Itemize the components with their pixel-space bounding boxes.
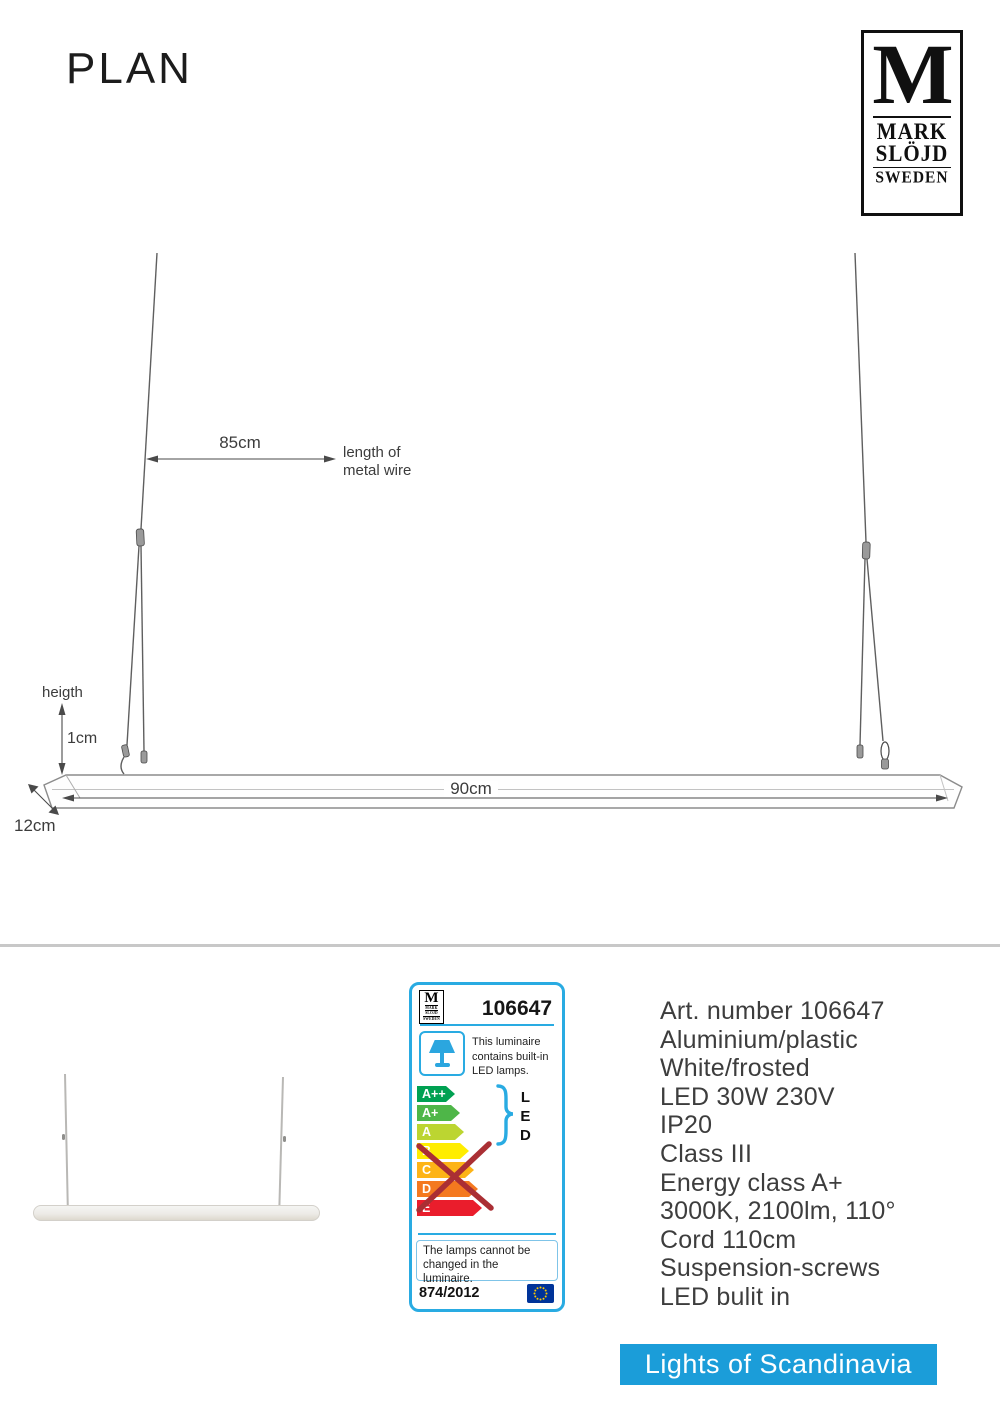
right-suspension-wire — [855, 253, 889, 769]
dim-wire-note-line1: length of — [343, 444, 401, 461]
spec-line: Class III — [660, 1140, 990, 1169]
brand-logo-monogram: M — [872, 35, 951, 114]
dim-wire-length-value: 85cm — [219, 433, 261, 452]
dim-wire-length: 85cm length of metal wire — [146, 433, 411, 479]
product-specs: Art. number 106647 Aluminium/plastic Whi… — [660, 997, 990, 1312]
label-divider — [418, 1233, 556, 1235]
regulation-number: 874/2012 — [419, 1285, 479, 1301]
label-divider — [420, 1024, 554, 1026]
energy-class-label: A++ — [417, 1086, 455, 1102]
spec-line: Suspension-screws — [660, 1254, 990, 1283]
spec-line: LED 30W 230V — [660, 1083, 990, 1112]
spec-line: 3000K, 2100lm, 110° — [660, 1197, 990, 1226]
led-letter: L — [520, 1088, 531, 1107]
energy-class-label: A+ — [417, 1105, 460, 1121]
photo-lamp-bar — [33, 1205, 320, 1221]
product-photo — [0, 1050, 360, 1250]
energy-class-row: A++ — [417, 1086, 455, 1102]
spec-line: Aluminium/plastic — [660, 1026, 990, 1055]
dim-wire-note-line2: metal wire — [343, 462, 411, 479]
article-number: 106647 — [482, 997, 552, 1021]
page-title: PLAN — [66, 44, 193, 94]
spec-line: White/frosted — [660, 1054, 990, 1083]
page: PLAN M MARK SLÖJD SWEDEN — [0, 0, 1000, 1414]
photo-wire-left — [64, 1074, 68, 1207]
section-divider — [0, 944, 1000, 947]
spec-line: LED bulit in — [660, 1283, 990, 1312]
energy-class-row: A — [417, 1124, 464, 1140]
luminaire-pictogram-box — [419, 1031, 465, 1076]
spec-line: IP20 — [660, 1111, 990, 1140]
photo-wire-grip-left — [62, 1134, 65, 1140]
dim-height: heigth 1cm — [42, 684, 97, 775]
mini-logo-word: SWEDEN — [423, 1016, 440, 1021]
lamps-note: The lamps cannot be changed in the lumin… — [416, 1240, 558, 1281]
spec-line: Cord 110cm — [660, 1226, 990, 1255]
luminaire-note: This luminaire contains built-in LED lam… — [472, 1035, 562, 1079]
dim-bar-length: 90cm — [450, 779, 492, 798]
energy-label-brand-logo: M MARK SLÖJD SWEDEN — [419, 990, 444, 1024]
photo-wire-grip-right — [283, 1136, 286, 1142]
energy-class-label: A — [417, 1124, 464, 1140]
dim-height-value: 1cm — [67, 730, 97, 747]
brand-word-sweden: SWEDEN — [875, 169, 948, 187]
led-letter: D — [520, 1126, 531, 1145]
dim-height-label: heigth — [42, 684, 83, 701]
dim-depth-value: 12cm — [14, 816, 56, 835]
brand-logo: M MARK SLÖJD SWEDEN — [861, 30, 963, 216]
led-group-text: L E D — [520, 1088, 531, 1145]
energy-class-row: A+ — [417, 1105, 460, 1121]
footer-banner-text: Lights of Scandinavia — [645, 1349, 912, 1380]
energy-label: M MARK SLÖJD SWEDEN 106647 This luminair… — [409, 982, 565, 1312]
footer-banner: Lights of Scandinavia — [620, 1344, 937, 1385]
technical-drawing: 90cm 85cm length of metal wire heigth 1c… — [0, 245, 1000, 845]
lamp-bar-drawing: 90cm — [44, 775, 962, 808]
eu-flag-icon — [527, 1284, 554, 1303]
mini-logo-monogram: M — [424, 991, 438, 1005]
left-suspension-wire — [121, 253, 157, 774]
crossed-out-classes-icon — [413, 1140, 497, 1214]
table-lamp-icon — [421, 1040, 463, 1067]
led-letter: E — [520, 1107, 531, 1126]
led-group-brace — [496, 1084, 516, 1146]
spec-line: Art. number 106647 — [660, 997, 990, 1026]
spec-line: Energy class A+ — [660, 1169, 990, 1198]
brand-word-slojd: SLÖJD — [876, 141, 949, 165]
